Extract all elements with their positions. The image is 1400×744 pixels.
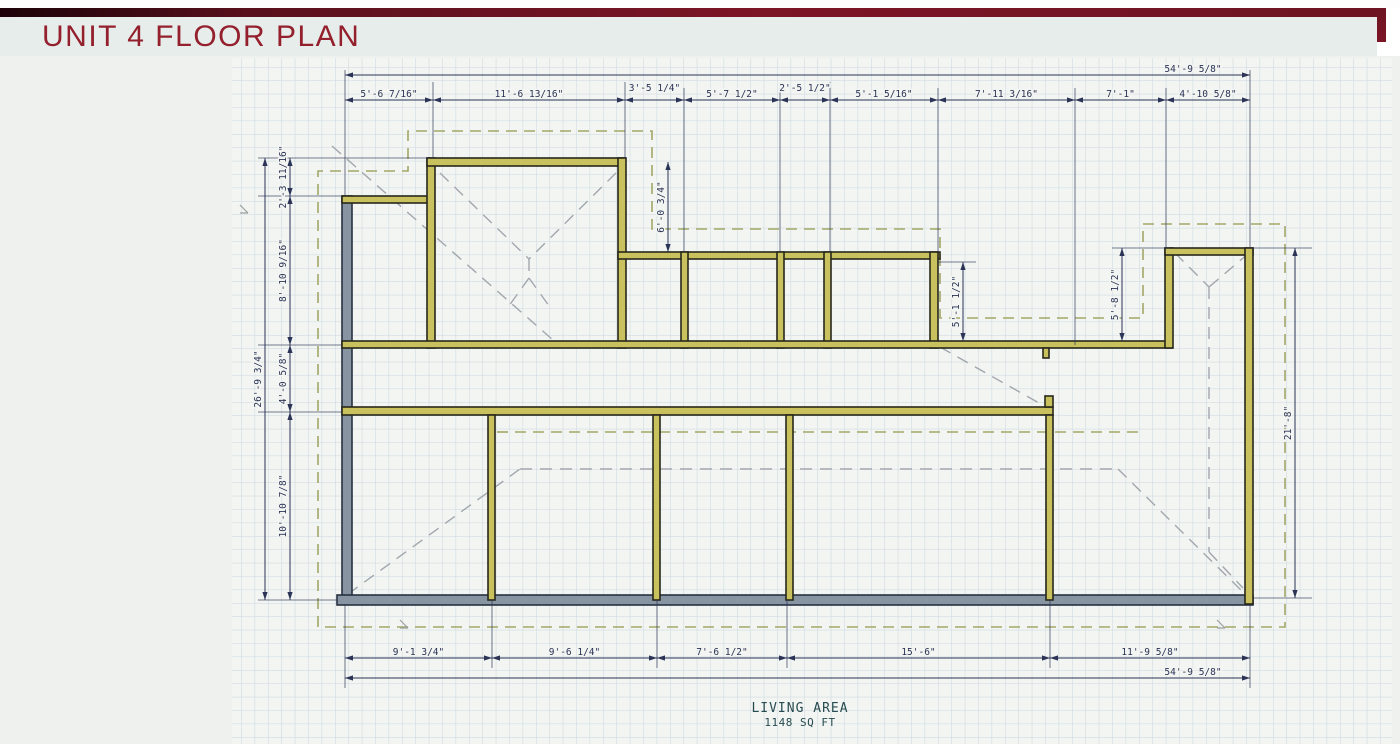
dimension-label: 7'-11 3/16"	[975, 89, 1038, 100]
wall	[1046, 415, 1053, 600]
wall	[930, 252, 938, 348]
wall	[1043, 348, 1049, 358]
wall	[777, 252, 784, 348]
wall	[1165, 248, 1253, 255]
dimension-label: 5'-6 7/16"	[360, 89, 417, 100]
dimension-label: 11'-9 5/8"	[1121, 647, 1178, 658]
wall	[427, 158, 435, 348]
grid-background	[232, 58, 1392, 744]
wall	[342, 407, 1053, 415]
wall	[1245, 248, 1253, 604]
dimension-label: 10'-10 7/8"	[278, 475, 289, 538]
floor-plan-canvas: 54'-9 5/8"5'-6 7/16"11'-6 13/16"3'-5 1/4…	[0, 56, 1400, 744]
dimension-label: 9'-1 3/4"	[393, 647, 444, 658]
title-rule-corner	[1377, 8, 1386, 42]
wall	[824, 252, 831, 348]
dimension-label: 6'-0 3/4"	[656, 181, 667, 232]
dimension-label: 8'-10 9/16"	[278, 239, 289, 302]
drawing-area: 54'-9 5/8"5'-6 7/16"11'-6 13/16"3'-5 1/4…	[0, 56, 1400, 744]
dimension-label: 11'-6 13/16"	[495, 89, 564, 100]
page-title: UNIT 4 FLOOR PLAN	[42, 20, 360, 54]
dimension-label: 2'-5 1/2"	[779, 83, 830, 94]
dimension-label: 26'-9 3/4"	[253, 350, 264, 407]
top-margin	[0, 0, 1400, 8]
wall	[427, 158, 625, 166]
dimension-label: 5'-1 5/16"	[855, 89, 912, 100]
title-rule	[0, 8, 1386, 17]
dimension-label: 54'-9 5/8"	[1164, 667, 1221, 678]
wall	[1165, 248, 1173, 348]
wall	[681, 252, 688, 348]
dimension-label: 3'-5 1/4"	[629, 83, 680, 94]
wall	[488, 415, 495, 600]
dimension-label: 7'-1"	[1106, 89, 1135, 100]
wall	[342, 196, 433, 203]
dimension-label: 5'-1 1/2"	[951, 276, 962, 327]
wall	[786, 415, 793, 600]
dimension-label: 4'-10 5/8"	[1179, 89, 1236, 100]
dimension-label: 54'-9 5/8"	[1164, 64, 1221, 75]
dimension-label: 4'-0 5/8"	[278, 353, 289, 404]
dimension-label: 9'-6 1/4"	[549, 647, 600, 658]
wall-gray	[342, 196, 352, 604]
dimension-label: 5'-7 1/2"	[706, 89, 757, 100]
dimension-label: 7'-6 1/2"	[696, 647, 747, 658]
dimension-label: 15'-6"	[901, 647, 935, 658]
living-area-value: 1148 SQ FT	[764, 716, 835, 729]
wall	[342, 341, 1172, 348]
dimension-label: 21'-8"	[1283, 406, 1294, 440]
dimension-label: 5'-8 1/2"	[1110, 269, 1121, 320]
living-area-label: LIVING AREA	[751, 701, 848, 716]
wall	[1045, 396, 1053, 407]
wall-gray	[337, 595, 1253, 605]
wall	[653, 415, 660, 600]
dimension-label: 2'-3 11/16"	[278, 146, 289, 209]
